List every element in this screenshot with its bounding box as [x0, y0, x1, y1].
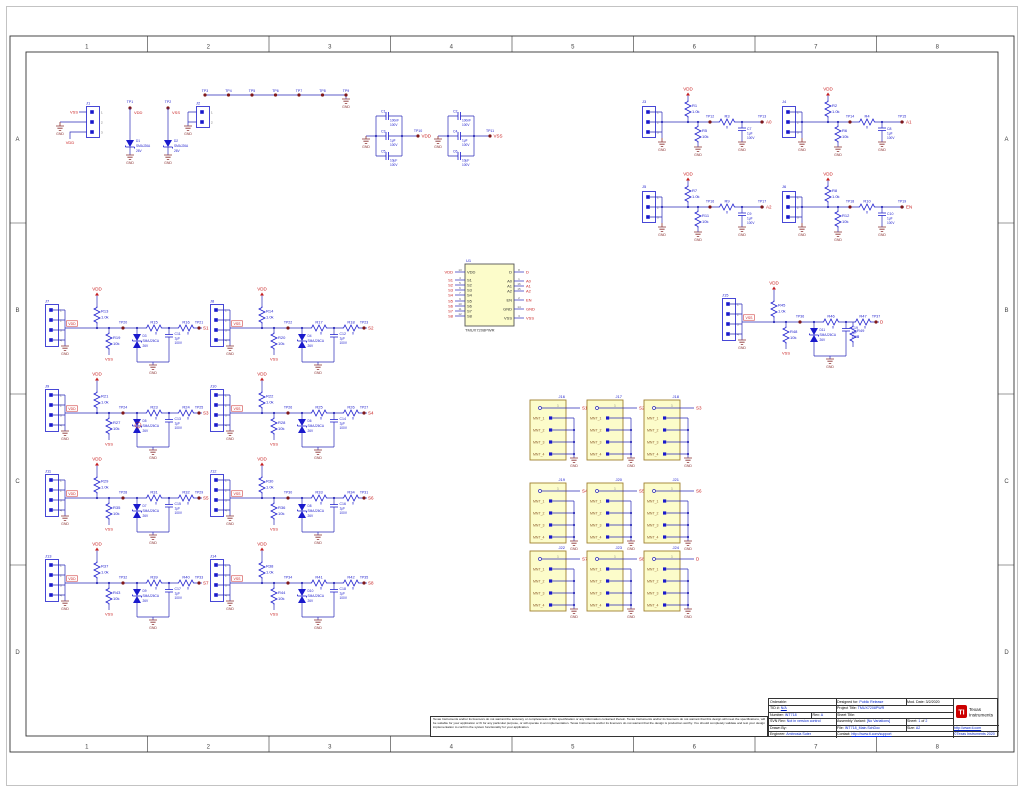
svg-text:R11: R11 — [702, 213, 710, 218]
pin1-pad — [539, 558, 542, 561]
svg-text:GND: GND — [658, 148, 666, 152]
svg-text:MNT_4: MNT_4 — [590, 453, 602, 457]
svg-text:10k: 10k — [842, 219, 848, 224]
ti-url-link[interactable]: http://www.ti.com — [954, 726, 981, 730]
svg-text:R15: R15 — [150, 320, 158, 325]
junction — [108, 327, 110, 329]
svg-text:100V: 100V — [390, 163, 398, 167]
svg-text:GND: GND — [149, 456, 157, 460]
pin1-pad — [596, 490, 599, 493]
svg-text:MNT_4: MNT_4 — [533, 536, 545, 540]
zone-label-text: D — [1004, 650, 1009, 656]
svg-text:1.0k: 1.0k — [692, 109, 700, 114]
svg-text:10k: 10k — [278, 596, 284, 601]
zone-label-text: B — [1004, 308, 1008, 314]
svg-text:TP32: TP32 — [119, 576, 127, 580]
junction — [261, 497, 263, 499]
svg-text:10k: 10k — [113, 511, 119, 516]
svg-text:VDD: VDD — [92, 372, 102, 377]
net-label: S3 — [203, 411, 209, 416]
svg-text:TP35: TP35 — [360, 576, 368, 580]
svg-text:TP10: TP10 — [414, 129, 422, 133]
test-point-pad[interactable] — [274, 93, 277, 96]
svg-text:GND: GND — [738, 148, 746, 152]
svg-text:TP28: TP28 — [119, 491, 127, 495]
svg-text:R27: R27 — [113, 420, 121, 425]
junction — [301, 327, 303, 329]
page-edge — [7, 7, 1018, 786]
svg-text:1.0k: 1.0k — [266, 570, 274, 575]
zone-label: C — [1004, 479, 1009, 485]
svg-text:MNT_2: MNT_2 — [533, 429, 545, 433]
svg-text:SMAJ26CA: SMAJ26CA — [143, 594, 160, 598]
svn-label: SVN Rev: — [770, 719, 786, 723]
test-point-pad[interactable] — [321, 93, 324, 96]
svg-text:26V: 26V — [143, 344, 150, 348]
svg-text:R4: R4 — [864, 114, 870, 119]
zone-label: B — [15, 308, 19, 314]
svg-text:TP17: TP17 — [758, 200, 766, 204]
svg-text:TP31: TP31 — [360, 491, 368, 495]
svg-text:J10: J10 — [210, 384, 217, 389]
svg-text:100V: 100V — [175, 511, 183, 515]
svg-text:100nF: 100nF — [390, 119, 399, 123]
test-point-label: TP7 — [296, 89, 302, 93]
svg-text:GND: GND — [878, 233, 886, 237]
svg-text:VSS: VSS — [233, 577, 241, 581]
svg-text:TP29: TP29 — [195, 491, 203, 495]
svg-text:1µF: 1µF — [887, 132, 893, 136]
svg-text:VSS: VSS — [745, 316, 753, 320]
svg-text:100V: 100V — [462, 143, 470, 147]
svg-text:SMAJ26CA: SMAJ26CA — [308, 509, 325, 513]
test-point-pad[interactable] — [344, 93, 347, 96]
net-label: VDD — [66, 140, 75, 145]
svg-text:R14: R14 — [266, 309, 274, 314]
net-label: VSS — [105, 357, 113, 362]
svg-text:10k: 10k — [113, 596, 119, 601]
variant-label: Assembly Variant: — [837, 719, 866, 723]
svg-text:GND: GND — [149, 626, 157, 630]
junction — [96, 497, 98, 499]
svg-text:D1: D1 — [136, 139, 140, 143]
svg-text:GND: GND — [694, 238, 702, 242]
svg-text:GND: GND — [738, 346, 746, 350]
svg-text:1.0k: 1.0k — [266, 400, 274, 405]
svg-text:R35: R35 — [113, 505, 121, 510]
junction — [837, 206, 839, 208]
svg-text:MNT_2: MNT_2 — [647, 580, 659, 584]
svg-text:100V: 100V — [175, 341, 183, 345]
svg-text:100V: 100V — [462, 163, 470, 167]
svg-text:MNT_4: MNT_4 — [533, 604, 545, 608]
svg-text:TP34: TP34 — [284, 576, 292, 580]
svg-text:VDD: VDD — [823, 172, 833, 177]
junction — [136, 327, 138, 329]
svg-text:MNT_1: MNT_1 — [647, 417, 659, 421]
svg-text:MNT_4: MNT_4 — [647, 536, 659, 540]
designator: J24 — [673, 545, 680, 550]
svg-text:100V: 100V — [462, 123, 470, 127]
svg-text:MNT_2: MNT_2 — [647, 512, 659, 516]
mod-date-value: 3/2/2020 — [926, 700, 940, 704]
rev-label: Rev: — [813, 713, 820, 717]
svg-text:D5: D5 — [143, 419, 147, 423]
svg-text:MNT_4: MNT_4 — [647, 453, 659, 457]
svg-text:10k: 10k — [702, 134, 708, 139]
designator: J17 — [616, 394, 623, 399]
drawn-by-label: Drawn By: — [770, 726, 787, 730]
svg-text:J14: J14 — [210, 554, 217, 559]
zone-label-text: B — [15, 308, 19, 314]
zone-label: A — [15, 137, 19, 143]
svg-text:100V: 100V — [340, 596, 348, 600]
tid-label: TID #: — [770, 706, 780, 710]
svg-text:SMAJ26A: SMAJ26A — [136, 144, 151, 148]
zone-label: D — [15, 650, 20, 656]
svg-text:MNT_3: MNT_3 — [533, 524, 545, 528]
svg-text:TP24: TP24 — [119, 406, 127, 410]
svg-text:R24: R24 — [182, 405, 190, 410]
svg-text:MNT_2: MNT_2 — [590, 580, 602, 584]
svg-text:GND: GND — [149, 371, 157, 375]
sheet-total: 2 — [925, 719, 927, 723]
svg-text:10µF: 10µF — [390, 159, 397, 163]
svg-text:MNT_3: MNT_3 — [647, 592, 659, 596]
svg-text:MNT_1: MNT_1 — [590, 500, 602, 504]
junction — [96, 327, 98, 329]
ti-logo-text: TI — [958, 710, 964, 717]
svg-text:R49: R49 — [857, 328, 865, 333]
svg-text:J12: J12 — [210, 469, 217, 474]
svg-text:TP18: TP18 — [846, 200, 854, 204]
svg-text:26V: 26V — [308, 514, 315, 518]
project-title-value: TMUX7208PWR — [858, 706, 885, 710]
svg-text:R12: R12 — [842, 213, 850, 218]
svg-text:1.0k: 1.0k — [101, 570, 109, 575]
pin-number: 10 — [458, 302, 462, 306]
net-label: S1 — [203, 326, 209, 331]
svg-text:R19: R19 — [113, 335, 121, 340]
net-label: A1 — [906, 120, 912, 125]
svg-text:C5: C5 — [381, 150, 386, 154]
designator: J16 — [559, 394, 566, 399]
svg-text:GND: GND — [342, 105, 350, 109]
svg-text:GND: GND — [61, 522, 69, 526]
svg-text:GND: GND — [627, 464, 635, 468]
svg-text:R1: R1 — [692, 103, 698, 108]
number-label: Number: — [770, 713, 784, 717]
net-label: VDD — [422, 134, 432, 139]
zone-label: D — [1004, 650, 1009, 656]
junction — [661, 206, 663, 208]
svg-text:C16: C16 — [340, 502, 346, 506]
svg-text:MNT_3: MNT_3 — [647, 441, 659, 445]
sheet-label: Sheet: — [907, 719, 917, 723]
junction — [261, 412, 263, 414]
svg-text:MNT_3: MNT_3 — [590, 592, 602, 596]
pin1-pad — [596, 558, 599, 561]
test-point-pad[interactable] — [203, 93, 206, 96]
svg-text:100V: 100V — [340, 426, 348, 430]
svg-text:1µF: 1µF — [175, 337, 181, 341]
junction — [801, 206, 803, 208]
svg-text:TP2: TP2 — [165, 100, 171, 104]
svg-text:26V: 26V — [136, 149, 143, 153]
svg-text:GND: GND — [627, 615, 635, 619]
svg-text:1.0k: 1.0k — [832, 194, 840, 199]
junction — [827, 206, 829, 208]
size-value: A2 — [916, 726, 920, 730]
junction — [96, 412, 98, 414]
svg-text:C14: C14 — [340, 417, 346, 421]
junction — [273, 582, 275, 584]
svg-text:26V: 26V — [308, 599, 315, 603]
svg-text:R43: R43 — [113, 590, 121, 595]
svg-text:100V: 100V — [390, 123, 398, 127]
svg-text:R31: R31 — [150, 490, 158, 495]
svg-text:TP11: TP11 — [486, 129, 494, 133]
net-label: S4 — [368, 411, 374, 416]
engineer-value: Ambrosia Suter — [786, 732, 811, 736]
svg-text:R33: R33 — [315, 490, 323, 495]
svg-text:R8: R8 — [832, 188, 838, 193]
tid-value[interactable]: N/A — [781, 706, 787, 710]
file-value: INT718_Main.SchDoc — [845, 726, 880, 730]
svg-text:MNT_1: MNT_1 — [647, 500, 659, 504]
pin-number: 11 — [458, 307, 461, 311]
svg-text:MNT_3: MNT_3 — [533, 592, 545, 596]
svg-text:VDD: VDD — [683, 172, 693, 177]
designator: J20 — [616, 477, 623, 482]
test-point-label: TP5 — [249, 89, 255, 93]
schematic-canvas: 1 2 3 4 5 6 7 8 1 2 3 4 5 6 7 8 — [0, 0, 1024, 792]
test-point-pad[interactable] — [297, 93, 300, 96]
svg-text:R41: R41 — [315, 575, 323, 580]
designator: J18 — [673, 394, 680, 399]
junction — [661, 121, 663, 123]
svg-text:VDD: VDD — [257, 542, 267, 547]
net-label: S3 — [696, 406, 702, 411]
net-label: VSS — [526, 316, 534, 321]
pin-name: S8 — [467, 314, 473, 319]
variant-value: [No Variations] — [867, 719, 890, 723]
net-label: VSS — [105, 527, 113, 532]
svg-text:VDD: VDD — [68, 407, 76, 411]
pin-name: VSS — [504, 316, 512, 321]
junction — [136, 412, 138, 414]
svg-text:GND: GND — [226, 437, 234, 441]
svg-text:GND: GND — [164, 161, 172, 165]
pin-name: D — [509, 270, 512, 275]
svg-text:SMAJ26CA: SMAJ26CA — [308, 339, 325, 343]
junction — [136, 497, 138, 499]
svg-text:C4: C4 — [453, 130, 458, 134]
junction — [687, 206, 689, 208]
junction — [136, 582, 138, 584]
svg-text:R46: R46 — [827, 314, 835, 319]
test-point-pad[interactable] — [227, 93, 230, 96]
schematic-page: 1 2 3 4 5 6 7 8 1 2 3 4 5 6 7 8 — [0, 0, 1024, 792]
net-label: S7 — [203, 581, 209, 586]
zone-label-text: C — [1004, 479, 1009, 485]
svg-text:GND: GND — [226, 607, 234, 611]
svg-text:GND: GND — [798, 148, 806, 152]
svg-text:1µF: 1µF — [747, 132, 753, 136]
svg-text:SMAJ26CA: SMAJ26CA — [143, 339, 160, 343]
svg-text:VSS: VSS — [233, 407, 241, 411]
part-number: TMUX7208PWR — [465, 328, 495, 333]
test-point-label: TP6 — [272, 89, 278, 93]
net-label: VSS — [70, 110, 78, 115]
ti-logo: TI Texas Instruments — [955, 702, 998, 722]
svg-text:R23: R23 — [150, 405, 158, 410]
net-label: S8 — [448, 314, 454, 319]
svg-text:R36: R36 — [278, 505, 286, 510]
pin-number: 14 — [517, 305, 521, 309]
svg-text:VSS: VSS — [233, 492, 241, 496]
test-point-label: TP8 — [319, 89, 325, 93]
svg-text:GND: GND — [226, 522, 234, 526]
svg-text:C12: C12 — [340, 332, 346, 336]
copyright: ©Texas Instruments 2020 — [954, 732, 995, 736]
junction — [697, 121, 699, 123]
size-label: Size: — [907, 726, 915, 730]
svg-text:TP25: TP25 — [195, 406, 203, 410]
svg-text:GND: GND — [570, 547, 578, 551]
svg-text:C13: C13 — [175, 417, 181, 421]
net-label: A2 — [526, 289, 532, 294]
designator: J23 — [616, 545, 623, 550]
svg-text:GND: GND — [834, 238, 842, 242]
svg-text:MNT_2: MNT_2 — [590, 512, 602, 516]
svg-text:VDD: VDD — [92, 287, 102, 292]
svg-text:MNT_2: MNT_2 — [590, 429, 602, 433]
svg-text:VDD: VDD — [68, 322, 76, 326]
svg-text:1.0k: 1.0k — [266, 315, 274, 320]
junction — [273, 327, 275, 329]
sheet-of: of — [921, 719, 924, 723]
svg-text:10k: 10k — [278, 511, 284, 516]
svg-text:MNT_4: MNT_4 — [533, 453, 545, 457]
svg-text:SMAJ26CA: SMAJ26CA — [820, 333, 837, 337]
svg-text:TP27: TP27 — [360, 406, 368, 410]
junction — [881, 121, 883, 123]
svg-text:GND: GND — [362, 145, 370, 149]
net-label: S2 — [368, 326, 374, 331]
svg-text:100V: 100V — [175, 596, 183, 600]
net-label: VDD — [134, 110, 143, 115]
svg-text:C10: C10 — [887, 212, 893, 216]
zone-label: C — [15, 479, 20, 485]
svg-text:1µF: 1µF — [462, 139, 468, 143]
contact-link[interactable]: http://www.ti.com/support — [851, 732, 891, 736]
svg-text:MNT_1: MNT_1 — [590, 568, 602, 572]
junction — [261, 327, 263, 329]
svg-text:GND: GND — [434, 145, 442, 149]
svg-text:R30: R30 — [266, 479, 274, 484]
junction — [301, 582, 303, 584]
svg-text:GND: GND — [570, 615, 578, 619]
svg-text:J13: J13 — [45, 554, 52, 559]
title-block: Orderable: TID #: N/A Number: INT718 Rev… — [768, 698, 998, 737]
pin1-pad — [539, 407, 542, 410]
project-title-label: Project Title: — [837, 706, 857, 710]
net-label: VDD — [445, 270, 454, 275]
svg-text:R34: R34 — [347, 490, 355, 495]
svg-text:R40: R40 — [182, 575, 190, 580]
net-label: VSS — [172, 110, 180, 115]
svg-text:26V: 26V — [174, 149, 181, 153]
svg-text:GND: GND — [56, 132, 64, 136]
svg-text:GND: GND — [61, 607, 69, 611]
svg-text:SMAJ26A: SMAJ26A — [174, 144, 189, 148]
svg-text:D7: D7 — [143, 504, 147, 508]
net-label: VSS — [782, 351, 790, 356]
svg-text:GND: GND — [684, 464, 692, 468]
svg-text:VDD: VDD — [823, 87, 833, 92]
svg-text:GND: GND — [184, 132, 192, 136]
svg-text:1µF: 1µF — [390, 139, 396, 143]
svg-text:TP36: TP36 — [796, 315, 804, 319]
svg-text:MNT_2: MNT_2 — [533, 580, 545, 584]
svg-text:R47: R47 — [859, 314, 867, 319]
svg-text:1.0k: 1.0k — [266, 485, 274, 490]
number-value: INT718 — [785, 713, 797, 717]
junction — [773, 321, 775, 323]
svg-text:GND: GND — [570, 464, 578, 468]
svg-text:10µF: 10µF — [462, 159, 469, 163]
svg-text:C8: C8 — [887, 127, 892, 131]
svg-text:R20: R20 — [278, 335, 286, 340]
svg-text:R42: R42 — [347, 575, 355, 580]
designed-for-value: Public Release — [859, 700, 883, 704]
svg-text:R44: R44 — [278, 590, 286, 595]
svg-text:C18: C18 — [340, 587, 346, 591]
svg-text:GND: GND — [314, 456, 322, 460]
junction — [813, 321, 815, 323]
svg-text:C2: C2 — [453, 110, 458, 114]
svg-text:26V: 26V — [143, 429, 150, 433]
zone-label: B — [1004, 308, 1008, 314]
svg-text:GND: GND — [627, 547, 635, 551]
svg-text:D4: D4 — [308, 334, 312, 338]
designator: U1 — [466, 258, 472, 263]
svg-text:SMAJ26CA: SMAJ26CA — [143, 509, 160, 513]
ti-logo-line1: Texas — [969, 707, 982, 712]
net-label: VSS — [270, 442, 278, 447]
sma-layer: J16 1 S1 MNT_1 MNT_2 MNT_3 MNT_4 GND J17 — [530, 394, 702, 619]
svg-text:VDD: VDD — [683, 87, 693, 92]
svg-text:MNT_4: MNT_4 — [590, 604, 602, 608]
svg-text:1.0k: 1.0k — [832, 109, 840, 114]
sheet-title-label: Sheet Title: — [837, 713, 855, 717]
svg-text:1.0k: 1.0k — [101, 315, 109, 320]
svg-text:TP1: TP1 — [127, 100, 133, 104]
svg-text:R18: R18 — [347, 320, 355, 325]
svg-text:R37: R37 — [101, 564, 109, 569]
svg-text:MNT_3: MNT_3 — [533, 441, 545, 445]
svg-text:TP16: TP16 — [706, 200, 714, 204]
test-point-pad[interactable] — [250, 93, 253, 96]
svg-text:VDD: VDD — [257, 457, 267, 462]
pin-name: A2 — [507, 289, 513, 294]
svg-text:100V: 100V — [747, 221, 755, 225]
svg-text:100V: 100V — [340, 511, 348, 515]
svg-text:1µF: 1µF — [175, 507, 181, 511]
svg-text:R2: R2 — [832, 103, 838, 108]
svg-text:MNT_2: MNT_2 — [647, 429, 659, 433]
